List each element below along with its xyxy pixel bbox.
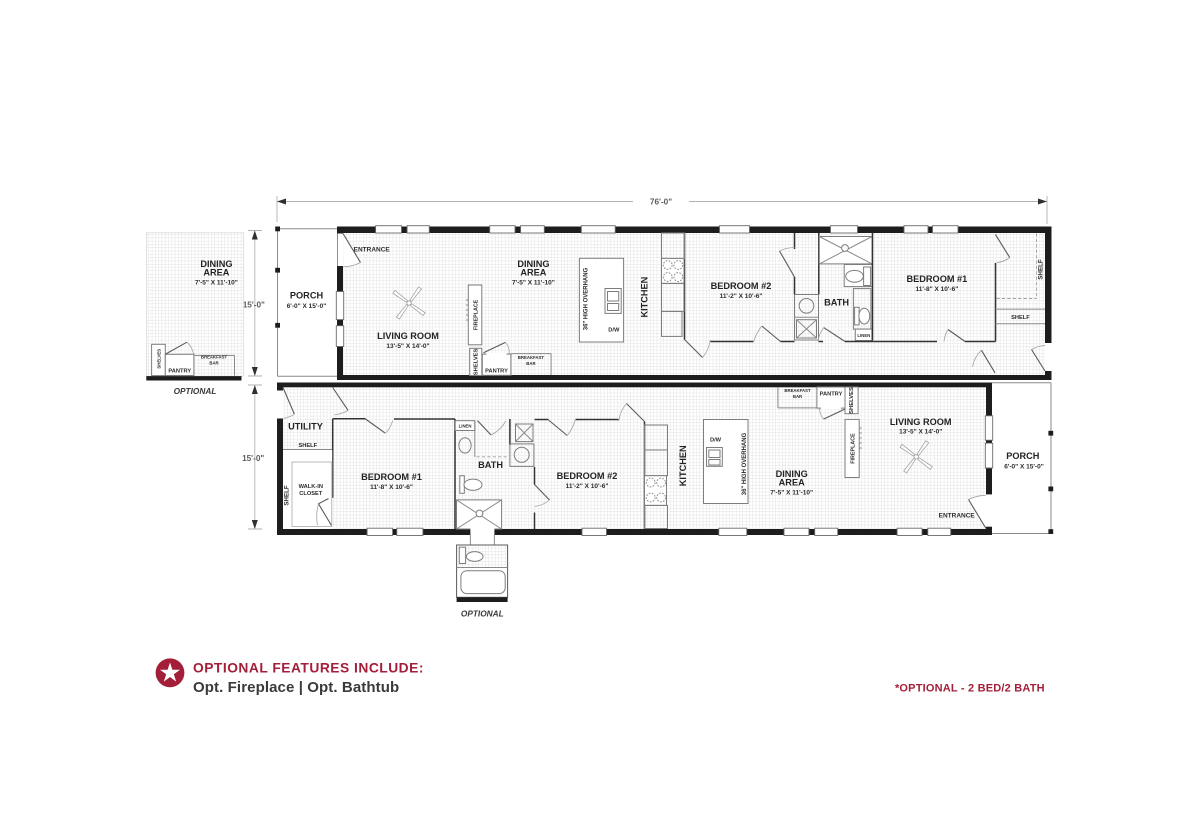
svg-text:D/W: D/W [710,438,722,444]
svg-text:SHELF: SHELF [284,485,291,506]
svg-text:UTILITY: UTILITY [288,422,323,432]
svg-text:CLOSET: CLOSET [299,491,323,497]
svg-text:11'-2" X 10'-6": 11'-2" X 10'-6" [720,293,763,300]
svg-text:OPTIONAL: OPTIONAL [174,386,217,396]
svg-text:BREAKFAST: BREAKFAST [201,354,228,359]
svg-text:SHELF: SHELF [1038,259,1045,280]
svg-text:11'-8" X 10'-6": 11'-8" X 10'-6" [915,286,958,293]
svg-text:7'-5" X 11'-10": 7'-5" X 11'-10" [770,490,813,497]
svg-text:7'-5" X 11'-10": 7'-5" X 11'-10" [512,280,555,287]
svg-text:SHELF: SHELF [1011,315,1030,321]
svg-text:13'-5" X 14'-0": 13'-5" X 14'-0" [899,429,942,436]
svg-text:BREAKFAST: BREAKFAST [518,355,545,360]
svg-text:FIREPLACE: FIREPLACE [850,433,856,464]
svg-text:KITCHEN: KITCHEN [678,445,688,486]
svg-text:76'-0": 76'-0" [650,198,672,207]
svg-text:PANTRY: PANTRY [168,369,191,375]
svg-text:6'-0" X 15'-0": 6'-0" X 15'-0" [1004,464,1044,471]
svg-text:15'-0": 15'-0" [242,454,264,463]
svg-text:BATH: BATH [824,298,849,308]
svg-text:*OPTIONAL - 2 BED/2 BATH: *OPTIONAL - 2 BED/2 BATH [895,683,1045,695]
svg-text:LINEN: LINEN [459,424,472,429]
svg-text:LINEN: LINEN [857,333,870,338]
svg-text:11'-2" X 10'-6": 11'-2" X 10'-6" [566,483,609,490]
svg-text:PANTRY: PANTRY [820,392,843,398]
svg-text:OPTIONAL FEATURES INCLUDE:: OPTIONAL FEATURES INCLUDE: [193,661,424,676]
svg-text:PORCH: PORCH [1006,451,1040,461]
svg-text:D/W: D/W [608,328,620,334]
svg-text:KITCHEN: KITCHEN [640,276,650,317]
svg-text:SHELVES: SHELVES [157,349,162,369]
svg-text:BREAKFAST: BREAKFAST [784,388,811,393]
svg-text:LIVING ROOM: LIVING ROOM [890,417,952,427]
svg-text:BAR: BAR [209,360,219,365]
svg-text:BAR: BAR [793,394,803,399]
svg-text:BAR: BAR [526,361,536,366]
svg-text:PORCH: PORCH [290,291,324,301]
svg-text:SHELF: SHELF [298,443,317,449]
svg-text:LIVING ROOM: LIVING ROOM [377,331,439,341]
svg-text:13'-5" X 14'-0": 13'-5" X 14'-0" [386,343,429,350]
svg-text:BEDROOM #1: BEDROOM #1 [907,274,968,284]
svg-text:SHELVES: SHELVES [474,348,480,375]
svg-text:OPTIONAL: OPTIONAL [461,609,504,619]
svg-text:SHELVES: SHELVES [849,387,855,414]
svg-text:15'-0": 15'-0" [243,301,265,310]
svg-text:11'-8" X 10'-6": 11'-8" X 10'-6" [370,484,413,491]
svg-text:BEDROOM #1: BEDROOM #1 [361,472,422,482]
svg-text:6'-0" X 15'-0": 6'-0" X 15'-0" [287,303,327,310]
svg-text:7'-5" X 11'-10": 7'-5" X 11'-10" [195,280,238,287]
svg-text:36" HIGH OVERHANG: 36" HIGH OVERHANG [742,432,748,495]
svg-text:36" HIGH OVERHANG: 36" HIGH OVERHANG [584,267,590,330]
svg-text:AREA: AREA [779,478,805,488]
svg-text:ENTRANCE: ENTRANCE [939,513,976,520]
svg-text:BEDROOM #2: BEDROOM #2 [557,471,618,481]
svg-text:FIREPLACE: FIREPLACE [473,299,479,330]
svg-text:ENTRANCE: ENTRANCE [354,246,391,253]
svg-text:BATH: BATH [478,460,503,470]
svg-text:AREA: AREA [203,268,229,278]
svg-text:AREA: AREA [520,268,546,278]
svg-text:PANTRY: PANTRY [485,369,508,375]
svg-text:Opt. Fireplace | Opt. Bathtub: Opt. Fireplace | Opt. Bathtub [193,679,399,696]
svg-text:BEDROOM #2: BEDROOM #2 [711,281,772,291]
svg-text:WALK-IN: WALK-IN [299,484,323,490]
